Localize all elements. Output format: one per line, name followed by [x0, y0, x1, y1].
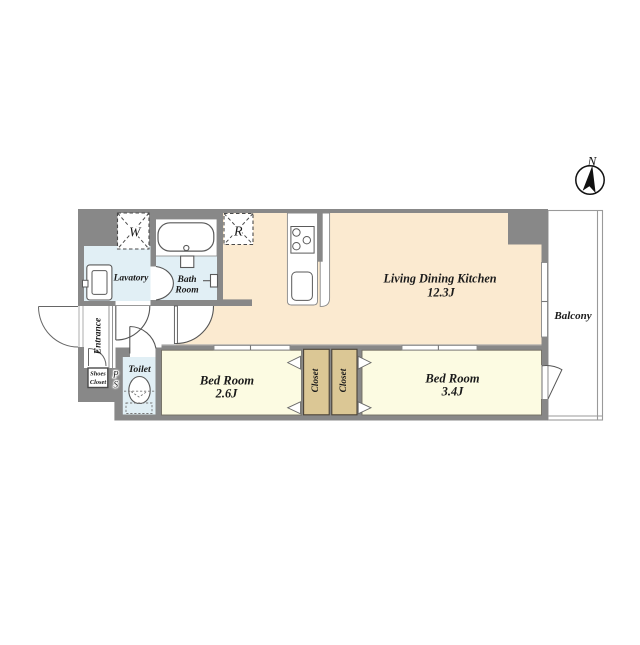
- svg-text:Entrance: Entrance: [93, 317, 103, 355]
- svg-text:Shoes: Shoes: [90, 371, 106, 378]
- svg-text:Living Dining Kitchen: Living Dining Kitchen: [382, 271, 496, 285]
- svg-text:N: N: [587, 154, 598, 169]
- svg-text:Closet: Closet: [339, 368, 349, 392]
- svg-text:3.4J: 3.4J: [441, 385, 464, 399]
- svg-text:P: P: [112, 370, 119, 380]
- svg-text:Room: Room: [174, 286, 198, 296]
- svg-text:Lavatory: Lavatory: [113, 273, 150, 283]
- svg-text:W: W: [129, 225, 142, 240]
- svg-text:S: S: [113, 380, 118, 390]
- svg-text:Bed Room: Bed Room: [199, 373, 254, 387]
- svg-text:Closet: Closet: [90, 379, 107, 386]
- svg-text:2.6J: 2.6J: [215, 386, 238, 400]
- svg-text:Bath: Bath: [176, 275, 196, 285]
- svg-text:R: R: [233, 225, 243, 240]
- svg-text:Bed Room: Bed Room: [424, 372, 479, 386]
- svg-text:Closet: Closet: [311, 368, 321, 392]
- svg-text:Toilet: Toilet: [128, 364, 151, 375]
- svg-text:Balcony: Balcony: [553, 310, 591, 322]
- svg-text:12.3J: 12.3J: [427, 286, 455, 300]
